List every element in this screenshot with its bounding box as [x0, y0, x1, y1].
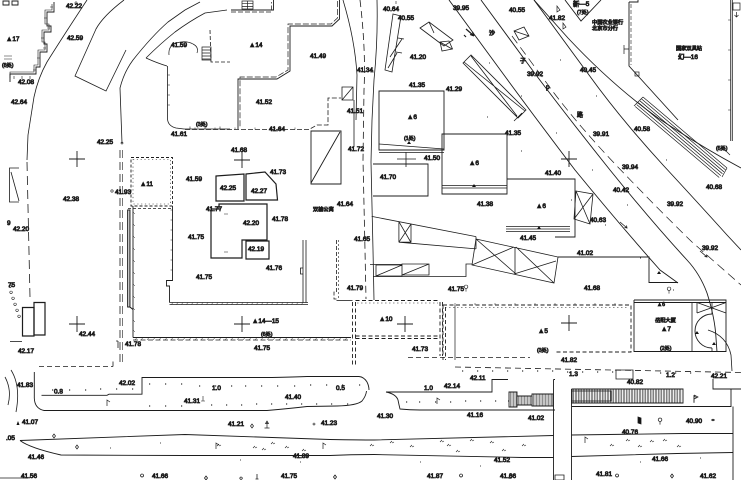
svg-text:41.35: 41.35 [505, 130, 521, 137]
svg-text:41.82: 41.82 [549, 15, 565, 22]
svg-text:41.40: 41.40 [545, 170, 561, 177]
svg-text:42.22: 42.22 [66, 3, 82, 10]
svg-text:沙: 沙 [489, 30, 495, 37]
svg-text:41.51: 41.51 [347, 108, 363, 115]
svg-text:0.5: 0.5 [336, 385, 345, 392]
svg-text:40.90: 40.90 [686, 418, 702, 425]
svg-text:39.94: 39.94 [622, 164, 638, 171]
svg-text:41.52: 41.52 [494, 457, 510, 464]
svg-text:中国农业银行: 中国农业银行 [592, 18, 623, 26]
svg-text:40.68: 40.68 [706, 184, 722, 191]
svg-text:41.20: 41.20 [410, 54, 426, 61]
svg-text:路: 路 [577, 111, 583, 119]
svg-text:40.42: 40.42 [613, 187, 629, 194]
svg-text:41.68: 41.68 [231, 147, 247, 154]
svg-text:41.73: 41.73 [412, 346, 428, 353]
svg-text:42.59: 42.59 [67, 35, 83, 42]
svg-text:40.82: 40.82 [627, 379, 643, 386]
svg-text:42.19: 42.19 [248, 246, 264, 253]
svg-text:41.64: 41.64 [337, 201, 353, 208]
svg-text:41.46: 41.46 [28, 454, 44, 461]
svg-text:41.82: 41.82 [561, 357, 577, 364]
svg-text:40.63: 40.63 [590, 217, 606, 224]
svg-text:41.02: 41.02 [528, 415, 544, 422]
svg-text:41.70: 41.70 [380, 174, 396, 181]
svg-text:岳阳大厦: 岳阳大厦 [655, 316, 676, 324]
svg-text:(7处): (7处) [577, 8, 589, 16]
svg-text:▲17: ▲17 [6, 36, 20, 43]
svg-text:▲5: ▲5 [538, 328, 548, 335]
svg-text:41.30: 41.30 [377, 413, 393, 420]
svg-text:1.0: 1.0 [424, 385, 433, 392]
svg-text:▲7: ▲7 [661, 326, 671, 333]
svg-text:41.38: 41.38 [477, 201, 493, 208]
svg-text:9: 9 [7, 220, 11, 227]
svg-text:41.75: 41.75 [188, 234, 204, 241]
svg-text:(3处): (3处) [537, 346, 549, 354]
svg-text:42.08: 42.08 [18, 79, 34, 86]
svg-text:41.93: 41.93 [115, 189, 131, 196]
svg-text:41.07: 41.07 [22, 419, 38, 426]
svg-text:(6处): (6处) [261, 330, 273, 338]
svg-text:41.78: 41.78 [125, 341, 141, 348]
svg-text:41.83: 41.83 [17, 382, 33, 389]
svg-text:▲6: ▲6 [407, 114, 417, 121]
svg-text:42.27: 42.27 [251, 188, 267, 195]
svg-text:0.8: 0.8 [54, 389, 63, 396]
svg-text:41.49: 41.49 [310, 53, 326, 60]
svg-text:▲14: ▲14 [249, 42, 263, 49]
svg-text:p: p [546, 84, 550, 91]
svg-text:(8处): (8处) [2, 61, 14, 69]
svg-text:41.16: 41.16 [467, 412, 483, 419]
svg-text:41.34: 41.34 [357, 67, 373, 74]
svg-text:41.62: 41.62 [700, 473, 716, 480]
svg-text:39.92: 39.92 [667, 201, 683, 208]
svg-text:41.23: 41.23 [321, 420, 337, 427]
svg-text:1.0: 1.0 [212, 385, 221, 392]
svg-text:1.3: 1.3 [569, 371, 578, 378]
svg-text:41.59: 41.59 [171, 42, 187, 49]
svg-text:39.92: 39.92 [527, 71, 543, 78]
svg-text:▲6: ▲6 [536, 203, 546, 210]
svg-text:42.02: 42.02 [119, 380, 135, 387]
svg-text:40.58: 40.58 [634, 126, 650, 133]
svg-text:41.68: 41.68 [584, 285, 600, 292]
svg-text:39.91: 39.91 [593, 131, 609, 138]
svg-text:▲10: ▲10 [379, 316, 393, 323]
svg-text:41.75: 41.75 [254, 345, 270, 352]
svg-text:75: 75 [8, 282, 16, 289]
svg-text:41.66: 41.66 [500, 473, 516, 480]
svg-text:41.40: 41.40 [285, 394, 301, 401]
svg-text:41.29: 41.29 [446, 86, 462, 93]
svg-text:41.52: 41.52 [256, 99, 272, 106]
svg-text:41.02: 41.02 [577, 250, 593, 257]
svg-text:41.66: 41.66 [152, 473, 168, 480]
svg-text:40.64: 40.64 [383, 6, 399, 13]
svg-text:41.50: 41.50 [424, 155, 440, 162]
svg-text:42.20: 42.20 [243, 220, 259, 227]
svg-text:41.66: 41.66 [652, 456, 668, 463]
svg-text:41.61: 41.61 [171, 131, 187, 138]
svg-text:42.25: 42.25 [220, 185, 236, 192]
svg-text:39.95: 39.95 [453, 5, 469, 12]
svg-text:42.38: 42.38 [63, 196, 79, 203]
svg-text:新—5: 新—5 [573, 0, 590, 8]
svg-text:国家双具站: 国家双具站 [676, 44, 702, 52]
svg-text:39.92: 39.92 [702, 245, 718, 252]
svg-text:41.78: 41.78 [272, 216, 288, 223]
svg-text:(2处): (2处) [660, 344, 672, 352]
svg-text:41.31: 41.31 [184, 398, 200, 405]
svg-text:41.75: 41.75 [281, 473, 297, 480]
svg-text:42.64: 42.64 [11, 99, 27, 106]
svg-text:▲14—15: ▲14—15 [252, 318, 279, 325]
svg-text:幻—16: 幻—16 [678, 52, 698, 61]
svg-text:42.25: 42.25 [97, 139, 113, 146]
svg-text:41.76: 41.76 [266, 265, 282, 272]
svg-text:40.55: 40.55 [509, 7, 525, 14]
svg-text:41.56: 41.56 [21, 473, 37, 480]
svg-text:41.75: 41.75 [448, 286, 464, 293]
svg-text:41.35: 41.35 [409, 82, 425, 89]
svg-text:(3处): (3处) [196, 120, 208, 128]
svg-text:.05: .05 [6, 435, 15, 442]
svg-text:41.64: 41.64 [269, 126, 285, 133]
svg-text:42.21: 42.21 [711, 373, 727, 380]
svg-text:41.73: 41.73 [270, 169, 286, 176]
svg-text:41.21: 41.21 [228, 421, 244, 428]
svg-text:41.79: 41.79 [347, 285, 363, 292]
svg-text:(5处): (5处) [716, 144, 728, 152]
svg-text:▲11: ▲11 [140, 181, 153, 188]
svg-text:北京市分行: 北京市分行 [592, 24, 618, 32]
svg-text:▲6: ▲6 [657, 302, 665, 308]
svg-text:(1处): (1处) [404, 134, 416, 142]
svg-text:1.2: 1.2 [666, 372, 675, 379]
svg-text:41.75: 41.75 [196, 274, 212, 281]
svg-text:42.17: 42.17 [18, 348, 34, 355]
svg-text:子: 子 [520, 58, 526, 65]
svg-text:▲6: ▲6 [469, 160, 479, 167]
svg-text:41.89: 41.89 [293, 453, 309, 460]
svg-text:42.14: 42.14 [444, 383, 460, 390]
svg-text:41.72: 41.72 [348, 146, 364, 153]
svg-text:42.20: 42.20 [13, 226, 29, 233]
svg-text:41.59: 41.59 [186, 176, 202, 183]
svg-text:41.45: 41.45 [520, 235, 536, 242]
svg-text:41.65: 41.65 [354, 236, 370, 243]
svg-text:双榆公寓: 双榆公寓 [313, 205, 334, 213]
svg-text:40.45: 40.45 [580, 67, 596, 74]
svg-text:40.76: 40.76 [622, 429, 638, 436]
svg-text:42.44: 42.44 [79, 331, 95, 338]
svg-text:41.81: 41.81 [596, 471, 612, 478]
svg-text:42.11: 42.11 [470, 375, 486, 382]
svg-text:41.87: 41.87 [427, 473, 443, 480]
